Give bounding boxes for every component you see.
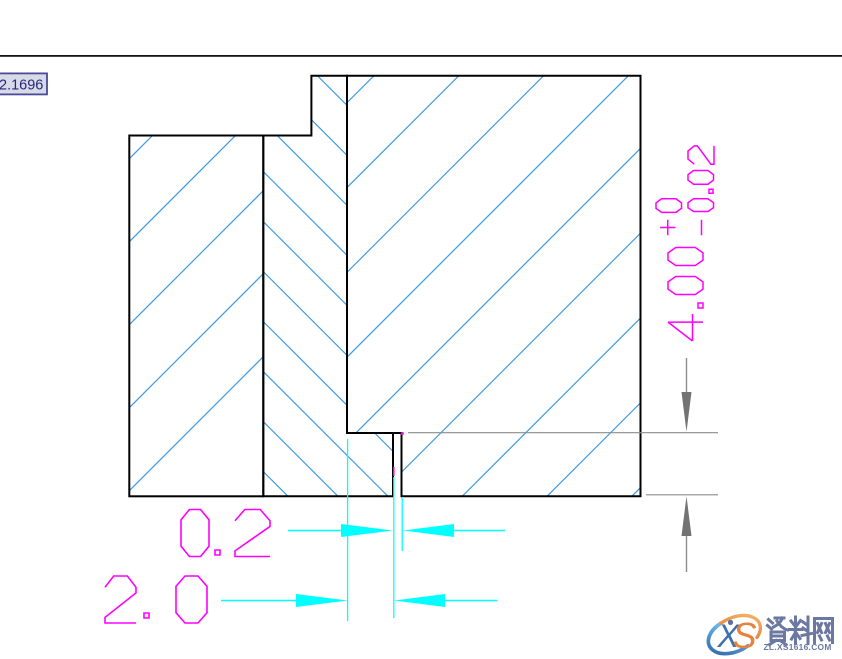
svg-text:ZL.XS1616.COM: ZL.XS1616.COM [764, 642, 832, 652]
svg-text:S: S [733, 615, 757, 656]
svg-text:2.1696: 2.1696 [0, 78, 43, 94]
